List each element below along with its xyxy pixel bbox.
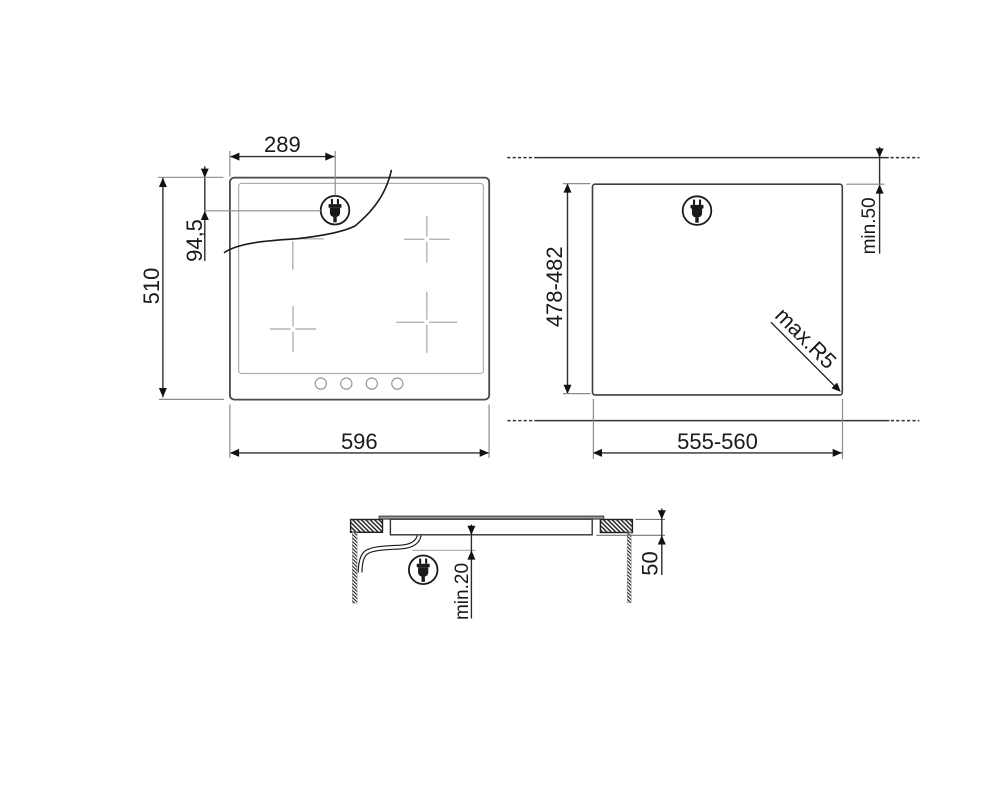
- svg-text:555-560: 555-560: [677, 429, 758, 454]
- svg-text:510: 510: [139, 268, 164, 305]
- svg-text:94,5: 94,5: [182, 219, 207, 262]
- svg-text:min.20: min.20: [452, 563, 473, 620]
- svg-text:min.50: min.50: [859, 197, 880, 254]
- svg-text:478-482: 478-482: [542, 246, 567, 327]
- svg-text:50: 50: [638, 551, 663, 575]
- svg-text:596: 596: [341, 429, 378, 454]
- svg-text:289: 289: [264, 132, 301, 157]
